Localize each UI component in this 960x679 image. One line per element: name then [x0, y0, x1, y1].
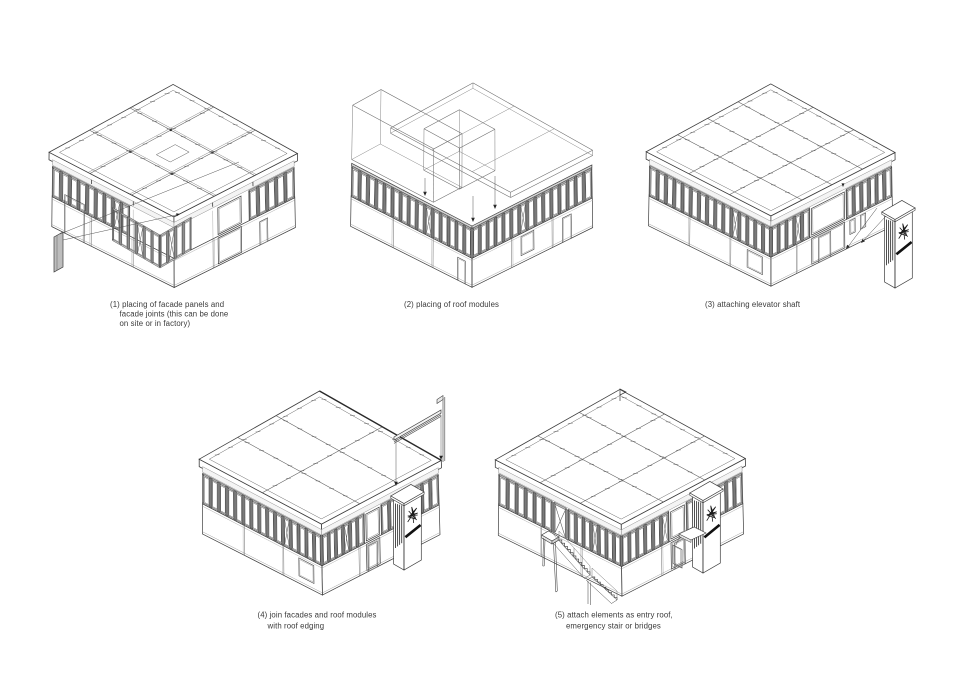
- svg-text:(5) attach elements as entry r: (5) attach elements as entry roof,: [555, 611, 673, 620]
- svg-text:(3) attaching elevator shaft: (3) attaching elevator shaft: [705, 300, 801, 309]
- svg-text:(2) placing of roof modules: (2) placing of roof modules: [404, 300, 499, 309]
- svg-text:on site or in factory): on site or in factory): [120, 319, 191, 328]
- svg-text:facade joints (this can be don: facade joints (this can be done: [120, 310, 229, 319]
- svg-text:emergency stair or bridges: emergency stair or bridges: [566, 622, 661, 631]
- svg-text:(4) join facades and roof modu: (4) join facades and roof modules: [258, 611, 377, 620]
- svg-text:with roof edging: with roof edging: [267, 622, 325, 631]
- svg-text:(1) placing of facade panels a: (1) placing of facade panels and: [110, 300, 224, 309]
